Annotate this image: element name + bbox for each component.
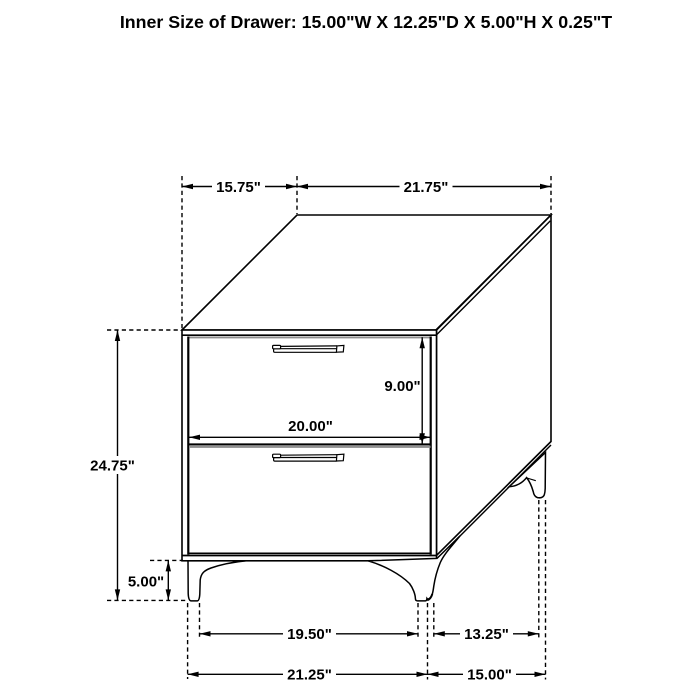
svg-text:21.25": 21.25"	[287, 667, 332, 684]
svg-text:15.75": 15.75"	[216, 179, 261, 196]
svg-text:20.00": 20.00"	[288, 418, 333, 435]
svg-text:Inner Size of Drawer: 15.00"W: Inner Size of Drawer: 15.00"W X 12.25"D …	[120, 12, 612, 32]
svg-text:13.25": 13.25"	[464, 626, 509, 643]
svg-text:5.00": 5.00"	[128, 573, 164, 590]
svg-text:19.50": 19.50"	[287, 626, 332, 643]
svg-text:21.75": 21.75"	[404, 179, 449, 196]
svg-text:15.00": 15.00"	[467, 667, 512, 684]
svg-text:9.00": 9.00"	[384, 378, 420, 395]
svg-text:24.75": 24.75"	[90, 458, 135, 475]
